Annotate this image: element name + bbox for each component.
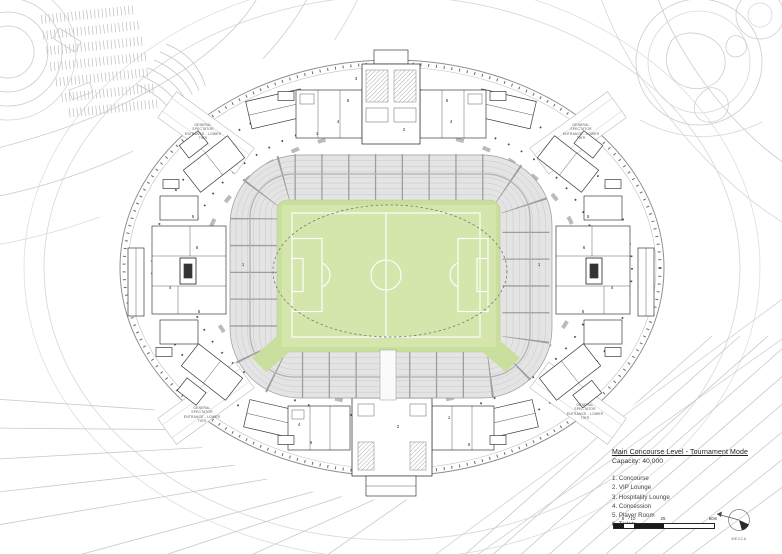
- player-tunnel: [380, 350, 396, 400]
- stadium: 6 4 1 3 2 6 4 5 6 4 1 6 5 6 4 1 6 2 1 4 …: [120, 50, 664, 496]
- stair-core: [358, 442, 374, 470]
- stair-core: [366, 70, 388, 102]
- screen-element: [590, 264, 598, 278]
- scale-bar: 5 10 25 50m: [613, 516, 733, 529]
- entrance-label-se: GENERAL SPECTATOR ENTRANCE - LOWER TIER: [553, 403, 617, 420]
- legend-item: 4. Concession: [612, 502, 782, 511]
- scale-bar-graphic: [613, 523, 715, 529]
- legend-item: 1. Concourse: [612, 474, 782, 483]
- south-rooms: [244, 398, 539, 496]
- entrance-label-nw: GENERAL SPECTATOR ENTRANCE - LOWER TIER: [171, 123, 235, 140]
- legend-capacity: Capacity: 40,000: [612, 458, 782, 465]
- scale-tick: 25: [661, 516, 666, 521]
- scale-tick: 5: [622, 516, 624, 521]
- scale-bar-ticks: 5 10 25 50m: [613, 516, 733, 522]
- stair-core: [394, 70, 416, 102]
- legend-item: 3. Hospitality Lounge: [612, 493, 782, 502]
- scale-tick: 10: [631, 516, 636, 521]
- stadium-floor-plan-drawing: 6 4 1 3 2 6 4 5 6 4 1 6 5 6 4 1 6 2 1 4 …: [0, 0, 782, 554]
- entrance-label-sw: GENERAL SPECTATOR ENTRANCE - LOWER TIER: [170, 406, 234, 423]
- adjacent-building-left: [0, 0, 93, 120]
- garden-roundabout: [636, 0, 782, 137]
- stair-core: [410, 442, 426, 470]
- screen-element: [184, 264, 192, 278]
- parking-lot: [41, 8, 156, 115]
- legend-item: 2. VIP Lounge: [612, 483, 782, 492]
- scale-tick: 50m: [709, 516, 718, 521]
- legend-title: Main Concourse Level - Tournament Mode: [612, 449, 782, 456]
- compass-label: MECCA: [732, 537, 747, 541]
- entrance-label-ne: GENERAL SPECTATOR ENTRANCE - LOWER TIER: [549, 123, 613, 140]
